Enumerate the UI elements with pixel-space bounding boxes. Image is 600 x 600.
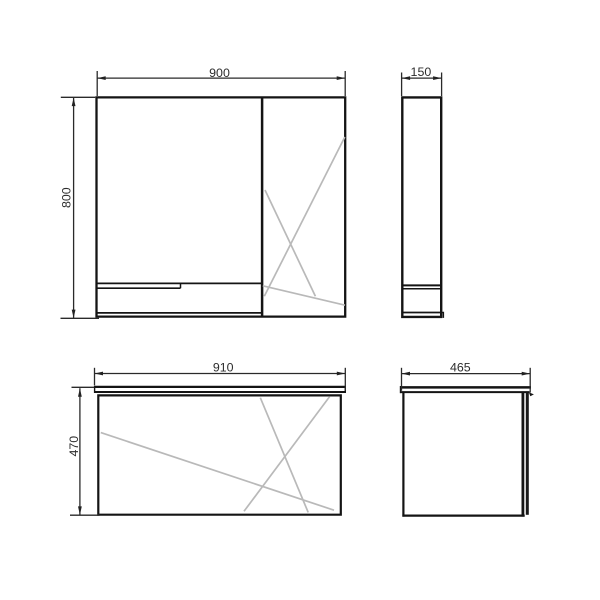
svg-text:150: 150 bbox=[411, 65, 432, 79]
svg-text:910: 910 bbox=[213, 360, 234, 374]
svg-text:900: 900 bbox=[209, 66, 230, 80]
svg-text:470: 470 bbox=[67, 436, 81, 457]
svg-text:465: 465 bbox=[450, 361, 471, 375]
svg-text:800: 800 bbox=[60, 187, 74, 208]
